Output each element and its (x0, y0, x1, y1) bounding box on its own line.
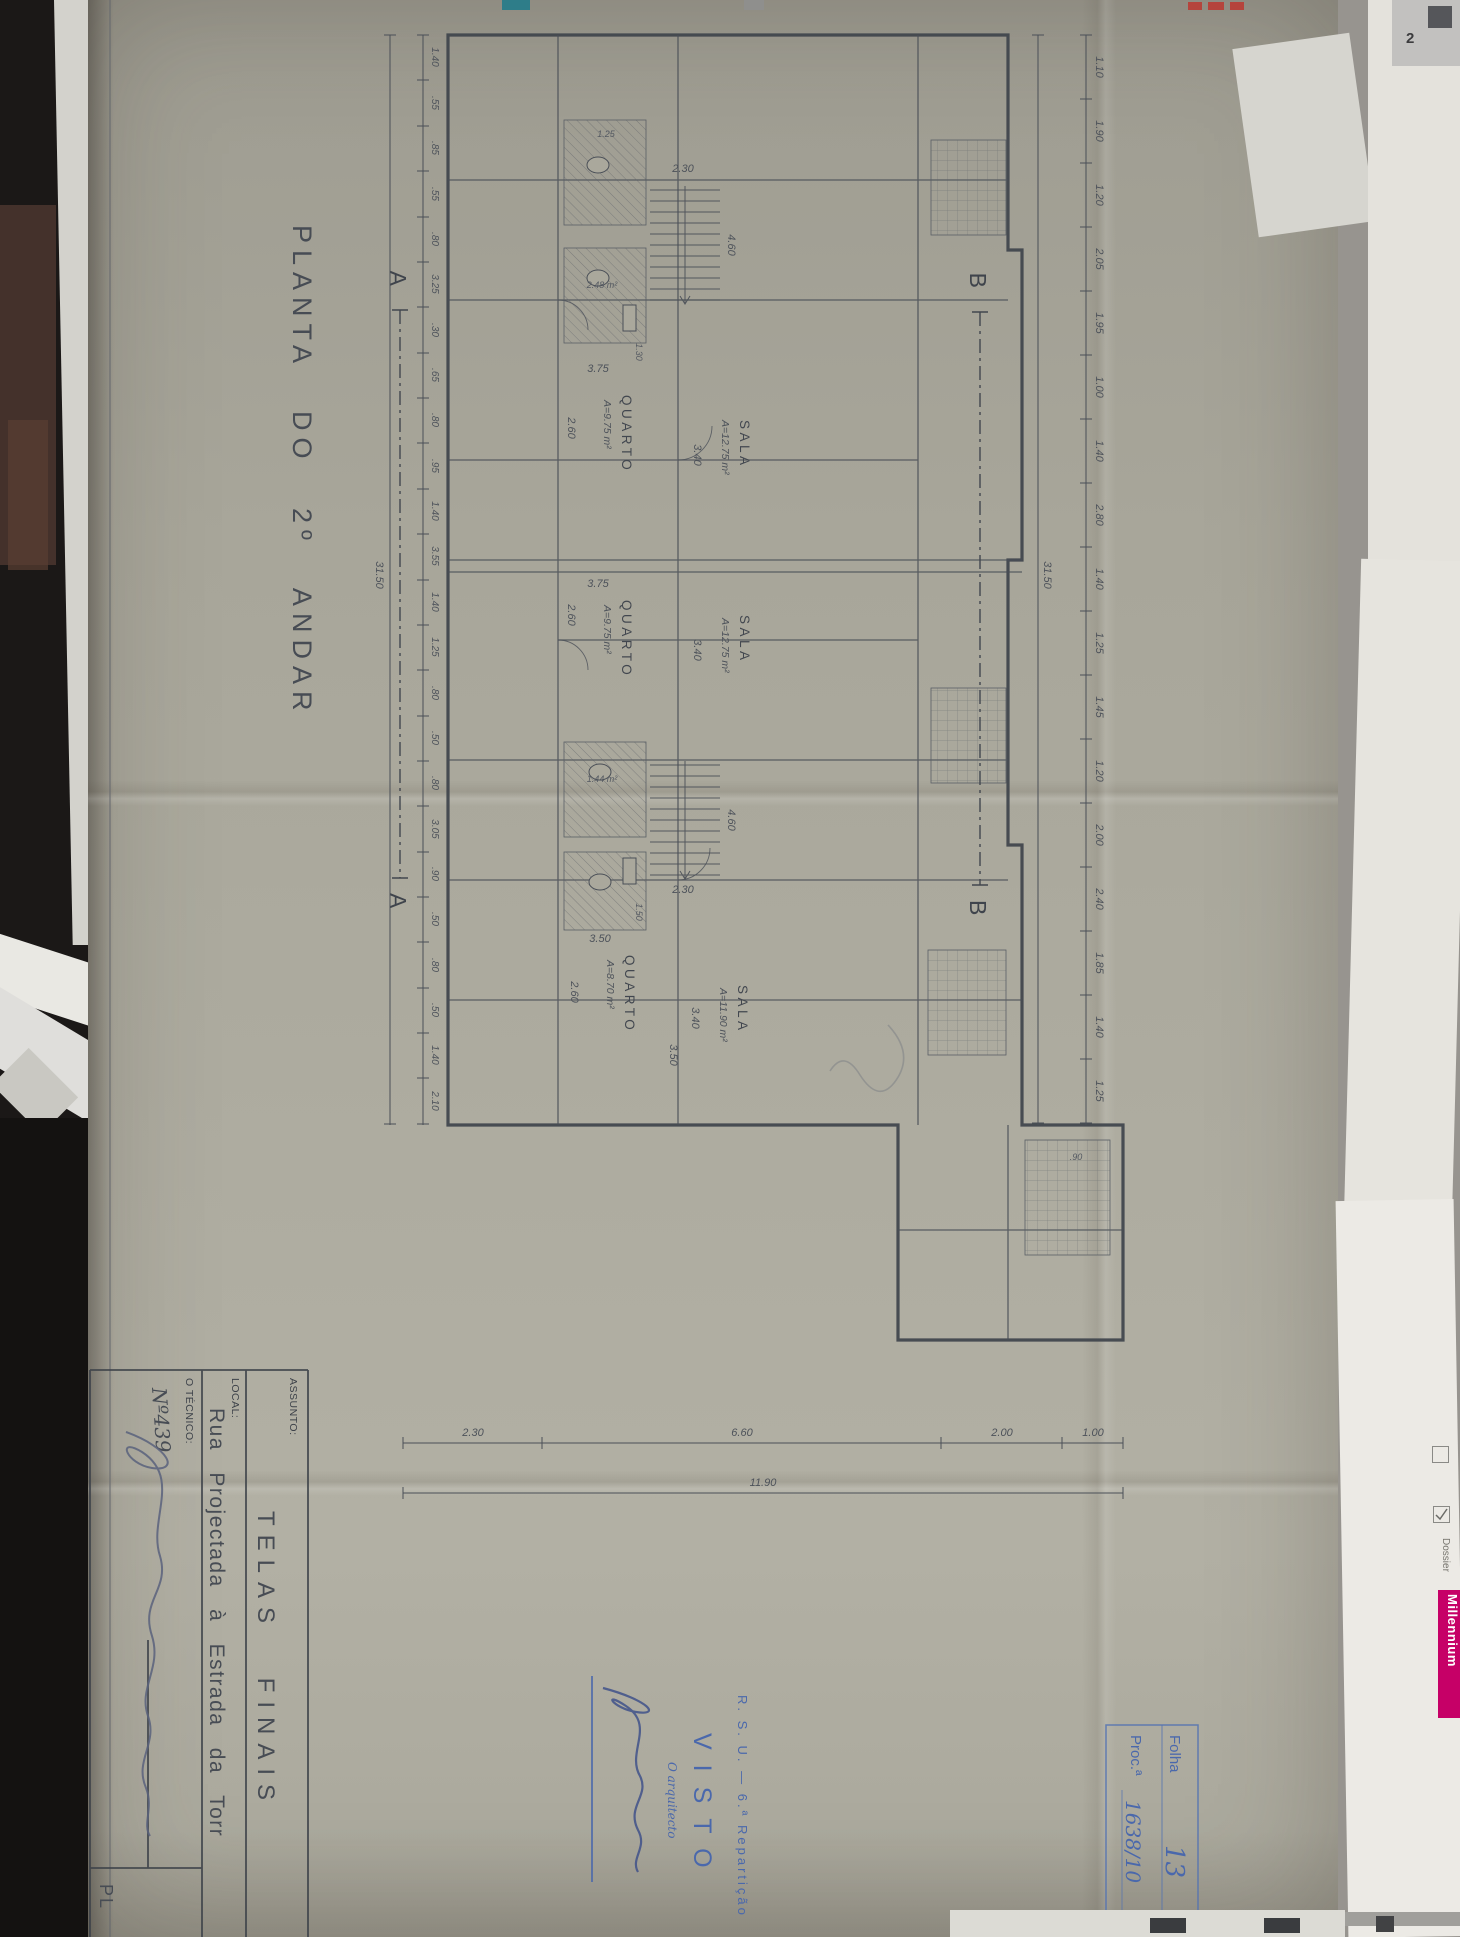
tecnico-label: O TÉCNICO: (183, 1378, 196, 1444)
dim-total-top: 31.50 (1041, 561, 1053, 589)
red-fragment (1230, 2, 1244, 10)
dim-chain-bottom-labels: 1.40 .55 .85 .55 .80 3.25 .30 .65 .80 .9… (373, 47, 440, 1111)
svg-text:1.45: 1.45 (1093, 696, 1105, 718)
svg-text:1.40: 1.40 (429, 501, 440, 521)
svg-text:3.55: 3.55 (429, 546, 440, 566)
svg-text:.85: .85 (429, 141, 440, 155)
svg-text:.80: .80 (429, 232, 440, 246)
dim-chain-right-labels: 1.00 2.00 6.60 2.30 11.90 (461, 1427, 1104, 1489)
dim-chain-bottom (384, 35, 429, 1125)
visto-role: O arquitecto (665, 1762, 679, 1838)
svg-text:.55: .55 (429, 96, 440, 110)
small-dim: 1.30 (634, 343, 644, 361)
svg-text:1.25: 1.25 (1093, 1080, 1105, 1102)
svg-text:.80: .80 (429, 413, 440, 427)
visto-stamp: R. S. U. — 6.ª Repartição VISTO O arquit… (592, 1676, 750, 1918)
room-dim: 3.40 (691, 444, 703, 466)
svg-text:1.85: 1.85 (1093, 952, 1105, 974)
room-dim: 3.75 (587, 578, 609, 590)
interior-walls (448, 35, 1123, 1340)
svg-text:1.40: 1.40 (429, 592, 440, 612)
grey-fragment (744, 0, 764, 10)
svg-text:1.40: 1.40 (1093, 1016, 1105, 1038)
section-marker-b: B (965, 900, 991, 915)
svg-text:1.00: 1.00 (1082, 1427, 1104, 1439)
svg-text:1.20: 1.20 (1093, 760, 1105, 782)
svg-text:1.20: 1.20 (1093, 184, 1105, 206)
room-area: A=12.75 m² (719, 617, 731, 673)
section-line-a: A A (385, 271, 411, 909)
svg-text:.80: .80 (429, 686, 440, 700)
right-paper-strip (1343, 559, 1460, 1262)
small-dim: 1.25 (597, 129, 616, 139)
title-block: ASSUNTO: TELAS FINAIS LOCAL: Rua Project… (90, 1370, 308, 1937)
proc-value: 1638/10 (1121, 1800, 1145, 1883)
small-dim: 2.48 m² (586, 280, 619, 290)
svg-text:2.30: 2.30 (461, 1427, 484, 1439)
sheet-code: PL (96, 1884, 116, 1910)
svg-text:.80: .80 (429, 776, 440, 790)
pencil-scribble (830, 1025, 904, 1091)
svg-text:.55: .55 (429, 187, 440, 201)
dim-total-right: 11.90 (750, 1477, 778, 1489)
small-dim: 1.50 (634, 903, 644, 921)
stair-width-dim: 2.30 (671, 884, 694, 896)
bathroom-hatch-areas (564, 120, 646, 930)
photo-of-blueprint: 4.60 4.60 2.30 2.30 QUARTO A=9.75 m² 2.6… (0, 0, 1460, 1937)
room-dim: 3.40 (689, 1007, 701, 1029)
millennium-brand-text: Millennium (1445, 1594, 1460, 1667)
svg-text:1.90: 1.90 (1093, 120, 1105, 142)
svg-text:1.40: 1.40 (1093, 568, 1105, 590)
bottom-dark-square (1150, 1918, 1186, 1933)
room-name: QUARTO (619, 395, 634, 473)
checkbox-checked-icon (1433, 1506, 1450, 1523)
local-label: LOCAL: (229, 1378, 241, 1418)
small-dim: 1.44 m² (587, 774, 619, 784)
section-marker-a: A (385, 893, 411, 909)
svg-text:.90: .90 (429, 867, 440, 881)
bottom-right-dark-glyph (1376, 1916, 1394, 1932)
room-area: A=12.75 m² (719, 419, 731, 475)
tecnico-signature (126, 1432, 168, 1836)
svg-text:.30: .30 (429, 323, 440, 337)
bottom-dark-square (1264, 1918, 1300, 1933)
section-marker-a: A (385, 271, 411, 287)
dim-chain-top-labels: 1.10 1.90 1.20 2.05 1.95 1.00 1.40 2.80 … (1041, 56, 1105, 1102)
staircase-left (650, 186, 720, 304)
section-line-b: B B (965, 273, 991, 916)
visto-signature (603, 1688, 649, 1872)
corner-stamp: Folha 13 Proc.ª 1638/10 (1106, 1725, 1198, 1930)
rotated-sheet: 4.60 4.60 2.30 2.30 QUARTO A=9.75 m² 2.6… (88, 0, 1338, 1937)
svg-text:1.10: 1.10 (1093, 56, 1105, 78)
assunto-value: TELAS FINAIS (252, 1511, 279, 1809)
svg-text:2.05: 2.05 (1093, 247, 1105, 270)
folha-value: 13 (1159, 1845, 1189, 1878)
room-dim: 2.60 (565, 603, 577, 626)
floor-plan-svg: 4.60 4.60 2.30 2.30 QUARTO A=9.75 m² 2.6… (88, 0, 1338, 1937)
red-fragment (1208, 2, 1224, 10)
room-dim: 3.50 (589, 933, 611, 945)
svg-text:.80: .80 (429, 958, 440, 972)
svg-text:2.80: 2.80 (1093, 503, 1105, 526)
top-right-dark-square (1428, 6, 1452, 28)
room-dim: 3.75 (587, 363, 609, 375)
room-name: QUARTO (622, 955, 637, 1033)
visto-word: VISTO (688, 1733, 716, 1883)
room-area: A=8.70 m² (604, 959, 616, 1009)
room-dim: 3.40 (691, 639, 703, 661)
red-fragment (1188, 2, 1202, 10)
svg-text:1.40: 1.40 (1093, 440, 1105, 462)
svg-text:2.00: 2.00 (1093, 823, 1105, 846)
svg-text:6.60: 6.60 (731, 1427, 753, 1439)
stair-length-dim: 4.60 (725, 809, 737, 831)
right-paper-strip (1368, 0, 1460, 640)
room-name: SALA (737, 420, 752, 469)
building-walls (448, 35, 1123, 1340)
plan-title: PLANTA DO 2º ANDAR (287, 225, 317, 717)
svg-text:.50: .50 (429, 731, 440, 745)
svg-text:1.25: 1.25 (429, 637, 440, 657)
dim-total-bottom: 31.50 (373, 561, 385, 589)
svg-text:2.40: 2.40 (1093, 887, 1105, 910)
svg-text:2.10: 2.10 (429, 1090, 440, 1111)
visto-department: R. S. U. — 6.ª Repartição (735, 1695, 750, 1918)
svg-text:.50: .50 (429, 1003, 440, 1017)
room-area: A=9.75 m² (601, 399, 613, 449)
local-value: Rua Projectada à Estrada da Torr (205, 1408, 228, 1837)
svg-text:.65: .65 (429, 368, 440, 382)
room-labels: QUARTO A=9.75 m² 2.60 3.75 SALA A=12.75 … (565, 363, 752, 1067)
dossier-label: Dossier (1440, 1538, 1451, 1572)
room-dim: 2.60 (565, 416, 577, 439)
svg-text:1.40: 1.40 (429, 1045, 440, 1065)
teal-fragment (502, 0, 530, 10)
millennium-brand-banner: Millennium (1438, 1590, 1460, 1718)
dim-chain-right (403, 1437, 1123, 1499)
corner-number: 2 (1406, 30, 1414, 47)
svg-text:.50: .50 (429, 912, 440, 926)
svg-text:3.05: 3.05 (429, 819, 440, 839)
check-mark (1434, 1507, 1449, 1522)
room-area: A=11.90 m² (717, 987, 729, 1042)
room-name: QUARTO (619, 600, 634, 678)
desk-bottom-left (0, 1118, 88, 1937)
svg-text:1.00: 1.00 (1093, 376, 1105, 398)
stair-width-dim: 2.30 (671, 163, 694, 175)
svg-text:2.00: 2.00 (990, 1427, 1013, 1439)
balcony-tile-areas (928, 140, 1110, 1255)
checkbox-icon (1432, 1446, 1449, 1463)
svg-text:1.25: 1.25 (1093, 632, 1105, 654)
folha-label: Folha (1166, 1735, 1183, 1773)
stair-length-dim: 4.60 (725, 234, 737, 256)
room-name: SALA (735, 985, 750, 1034)
room-dim: 3.50 (667, 1044, 679, 1066)
svg-text:.95: .95 (429, 459, 440, 473)
desk-rust-streak (8, 420, 48, 570)
assunto-label: ASSUNTO: (287, 1378, 299, 1435)
proc-label: Proc.ª (1127, 1735, 1144, 1776)
room-name: SALA (737, 615, 752, 664)
svg-text:1.95: 1.95 (1093, 312, 1105, 334)
svg-text:3.25: 3.25 (429, 274, 440, 294)
bottom-right-grey-bar (1345, 1912, 1460, 1926)
staircase-right (650, 761, 720, 879)
svg-text:1.40: 1.40 (429, 47, 440, 67)
room-dim: 2.60 (568, 980, 580, 1003)
room-area: A=9.75 m² (601, 604, 613, 654)
small-dim: .90 (1070, 1152, 1083, 1162)
section-marker-b: B (965, 273, 991, 288)
